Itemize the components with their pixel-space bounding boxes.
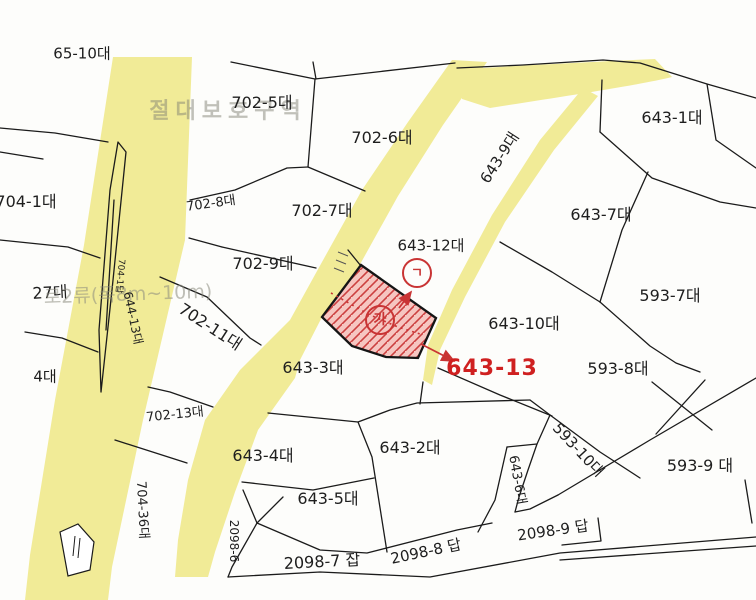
- parcel-label-4: 4대: [33, 370, 56, 385]
- highlight-parcel-number: 643-13: [446, 358, 538, 380]
- parcel-label-704-36: 704-36대: [134, 481, 150, 540]
- parcel-label-702-7: 702-7대: [291, 203, 352, 219]
- parcel-label-643-2: 643-2대: [379, 440, 440, 456]
- parcel-label-2098-7: 2098-7 잡: [283, 552, 360, 572]
- parcel-label-65-10: 65-10대: [53, 47, 110, 62]
- parcel-label-702-9: 702-9대: [232, 256, 293, 272]
- parcel-label-643-4: 643-4대: [232, 448, 293, 464]
- parcel-label-704-1b: 704-1답: [113, 258, 125, 293]
- parcel-label-702-5: 702-5대: [231, 95, 292, 111]
- parcel-label-593-8: 593-8대: [587, 361, 648, 377]
- parcel-label-2098-6: 2098-6: [228, 520, 240, 563]
- parcel-label-643-5: 643-5대: [297, 491, 358, 507]
- parcel-label-643-1: 643-1대: [641, 110, 702, 126]
- circled-giyeok-marker: ㄱ: [402, 258, 432, 288]
- parcel-label-593-9: 593-9 대: [667, 458, 733, 474]
- parcel-label-643-10: 643-10대: [488, 316, 559, 332]
- parcel-label-702-6: 702-6대: [351, 130, 412, 146]
- parcel-label-593-7: 593-7대: [639, 288, 700, 304]
- parcel-label-643-7: 643-7대: [570, 207, 631, 223]
- parcel-label-704-1: 704-1대: [0, 194, 57, 210]
- circled-ga-marker: 가: [365, 305, 395, 335]
- cadastral-map: 65-10대절대보호구역702-5대702-6대643-9대643-1대704-…: [0, 0, 756, 600]
- parcel-label-643-12: 643-12대: [398, 239, 465, 254]
- parcel-label-643-3: 643-3대: [282, 360, 343, 376]
